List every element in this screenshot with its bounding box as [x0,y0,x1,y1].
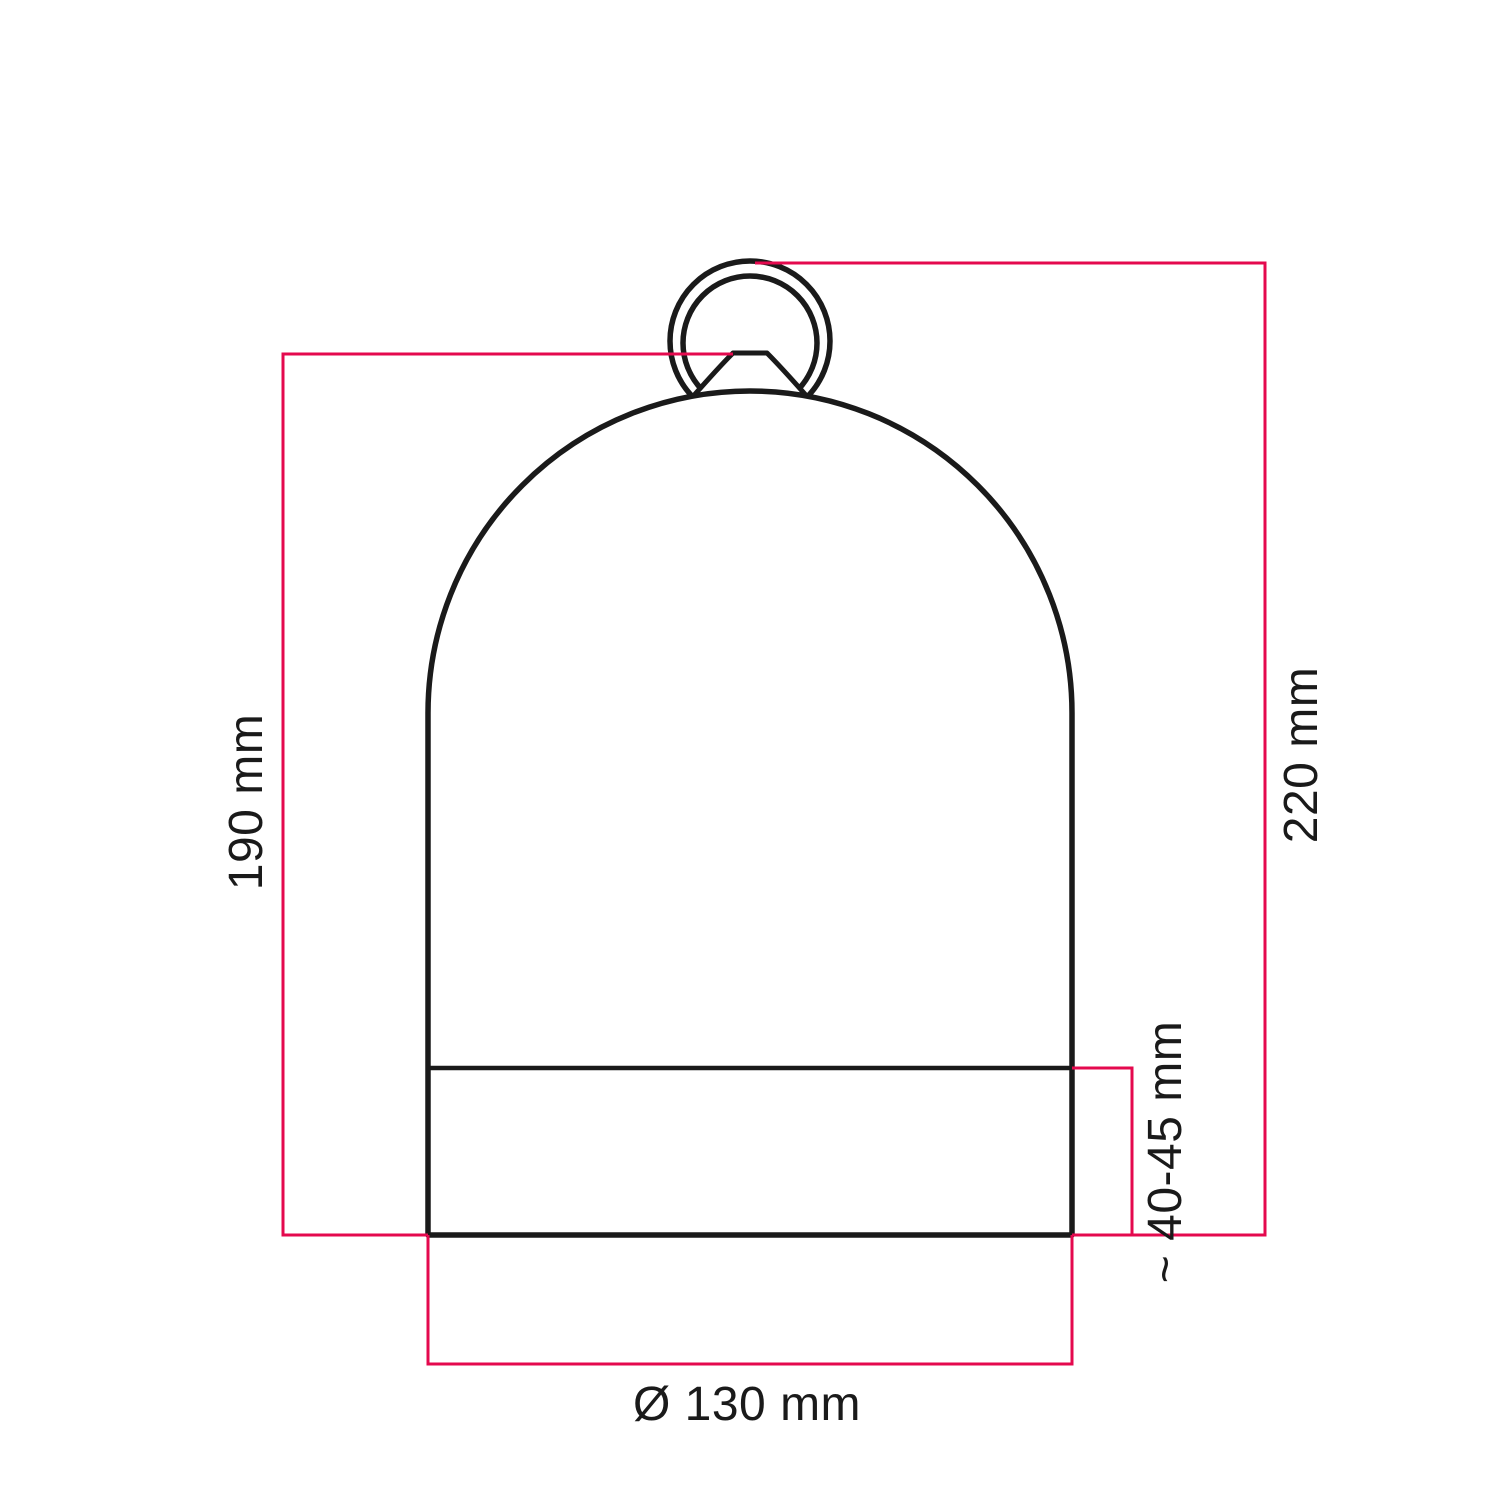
dim-label-base-diameter: Ø 130 mm [633,1378,861,1431]
dim-label-total-height: 220 mm [1275,667,1328,843]
dim-line-base-band-40-45 [1072,1068,1132,1235]
dim-line-diameter-130 [428,1235,1072,1364]
bell-dome-body [428,391,1072,1235]
dimension-drawing-canvas: 190 mm 220 mm ~ 40-45 mm Ø 130 mm [0,0,1500,1500]
dim-label-dome-height: 190 mm [220,714,273,890]
dim-label-base-band-height: ~ 40-45 mm [1139,1021,1192,1283]
lampshade-dimension-drawing: 190 mm 220 mm ~ 40-45 mm Ø 130 mm [0,0,1500,1500]
bell-outline-group [428,261,1072,1235]
